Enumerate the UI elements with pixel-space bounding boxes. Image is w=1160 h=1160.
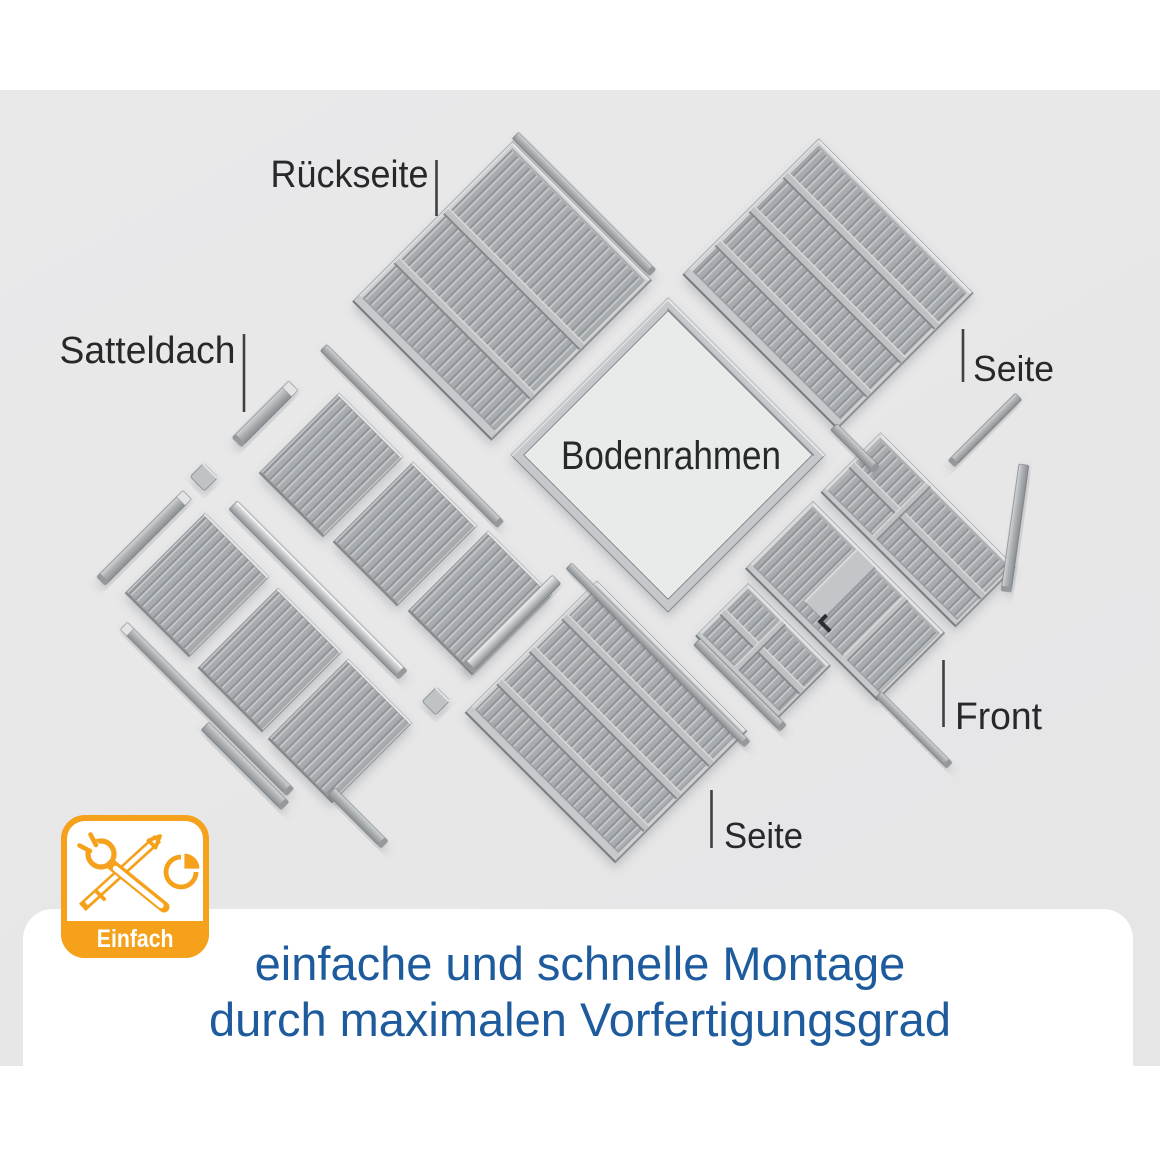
svg-text:Seite: Seite	[724, 815, 803, 856]
svg-text:Bodenrahmen: Bodenrahmen	[561, 434, 781, 478]
svg-text:Front: Front	[955, 696, 1042, 738]
svg-text:Rückseite: Rückseite	[271, 154, 429, 196]
svg-text:Satteldach: Satteldach	[60, 330, 236, 372]
svg-text:Seite: Seite	[973, 348, 1054, 389]
